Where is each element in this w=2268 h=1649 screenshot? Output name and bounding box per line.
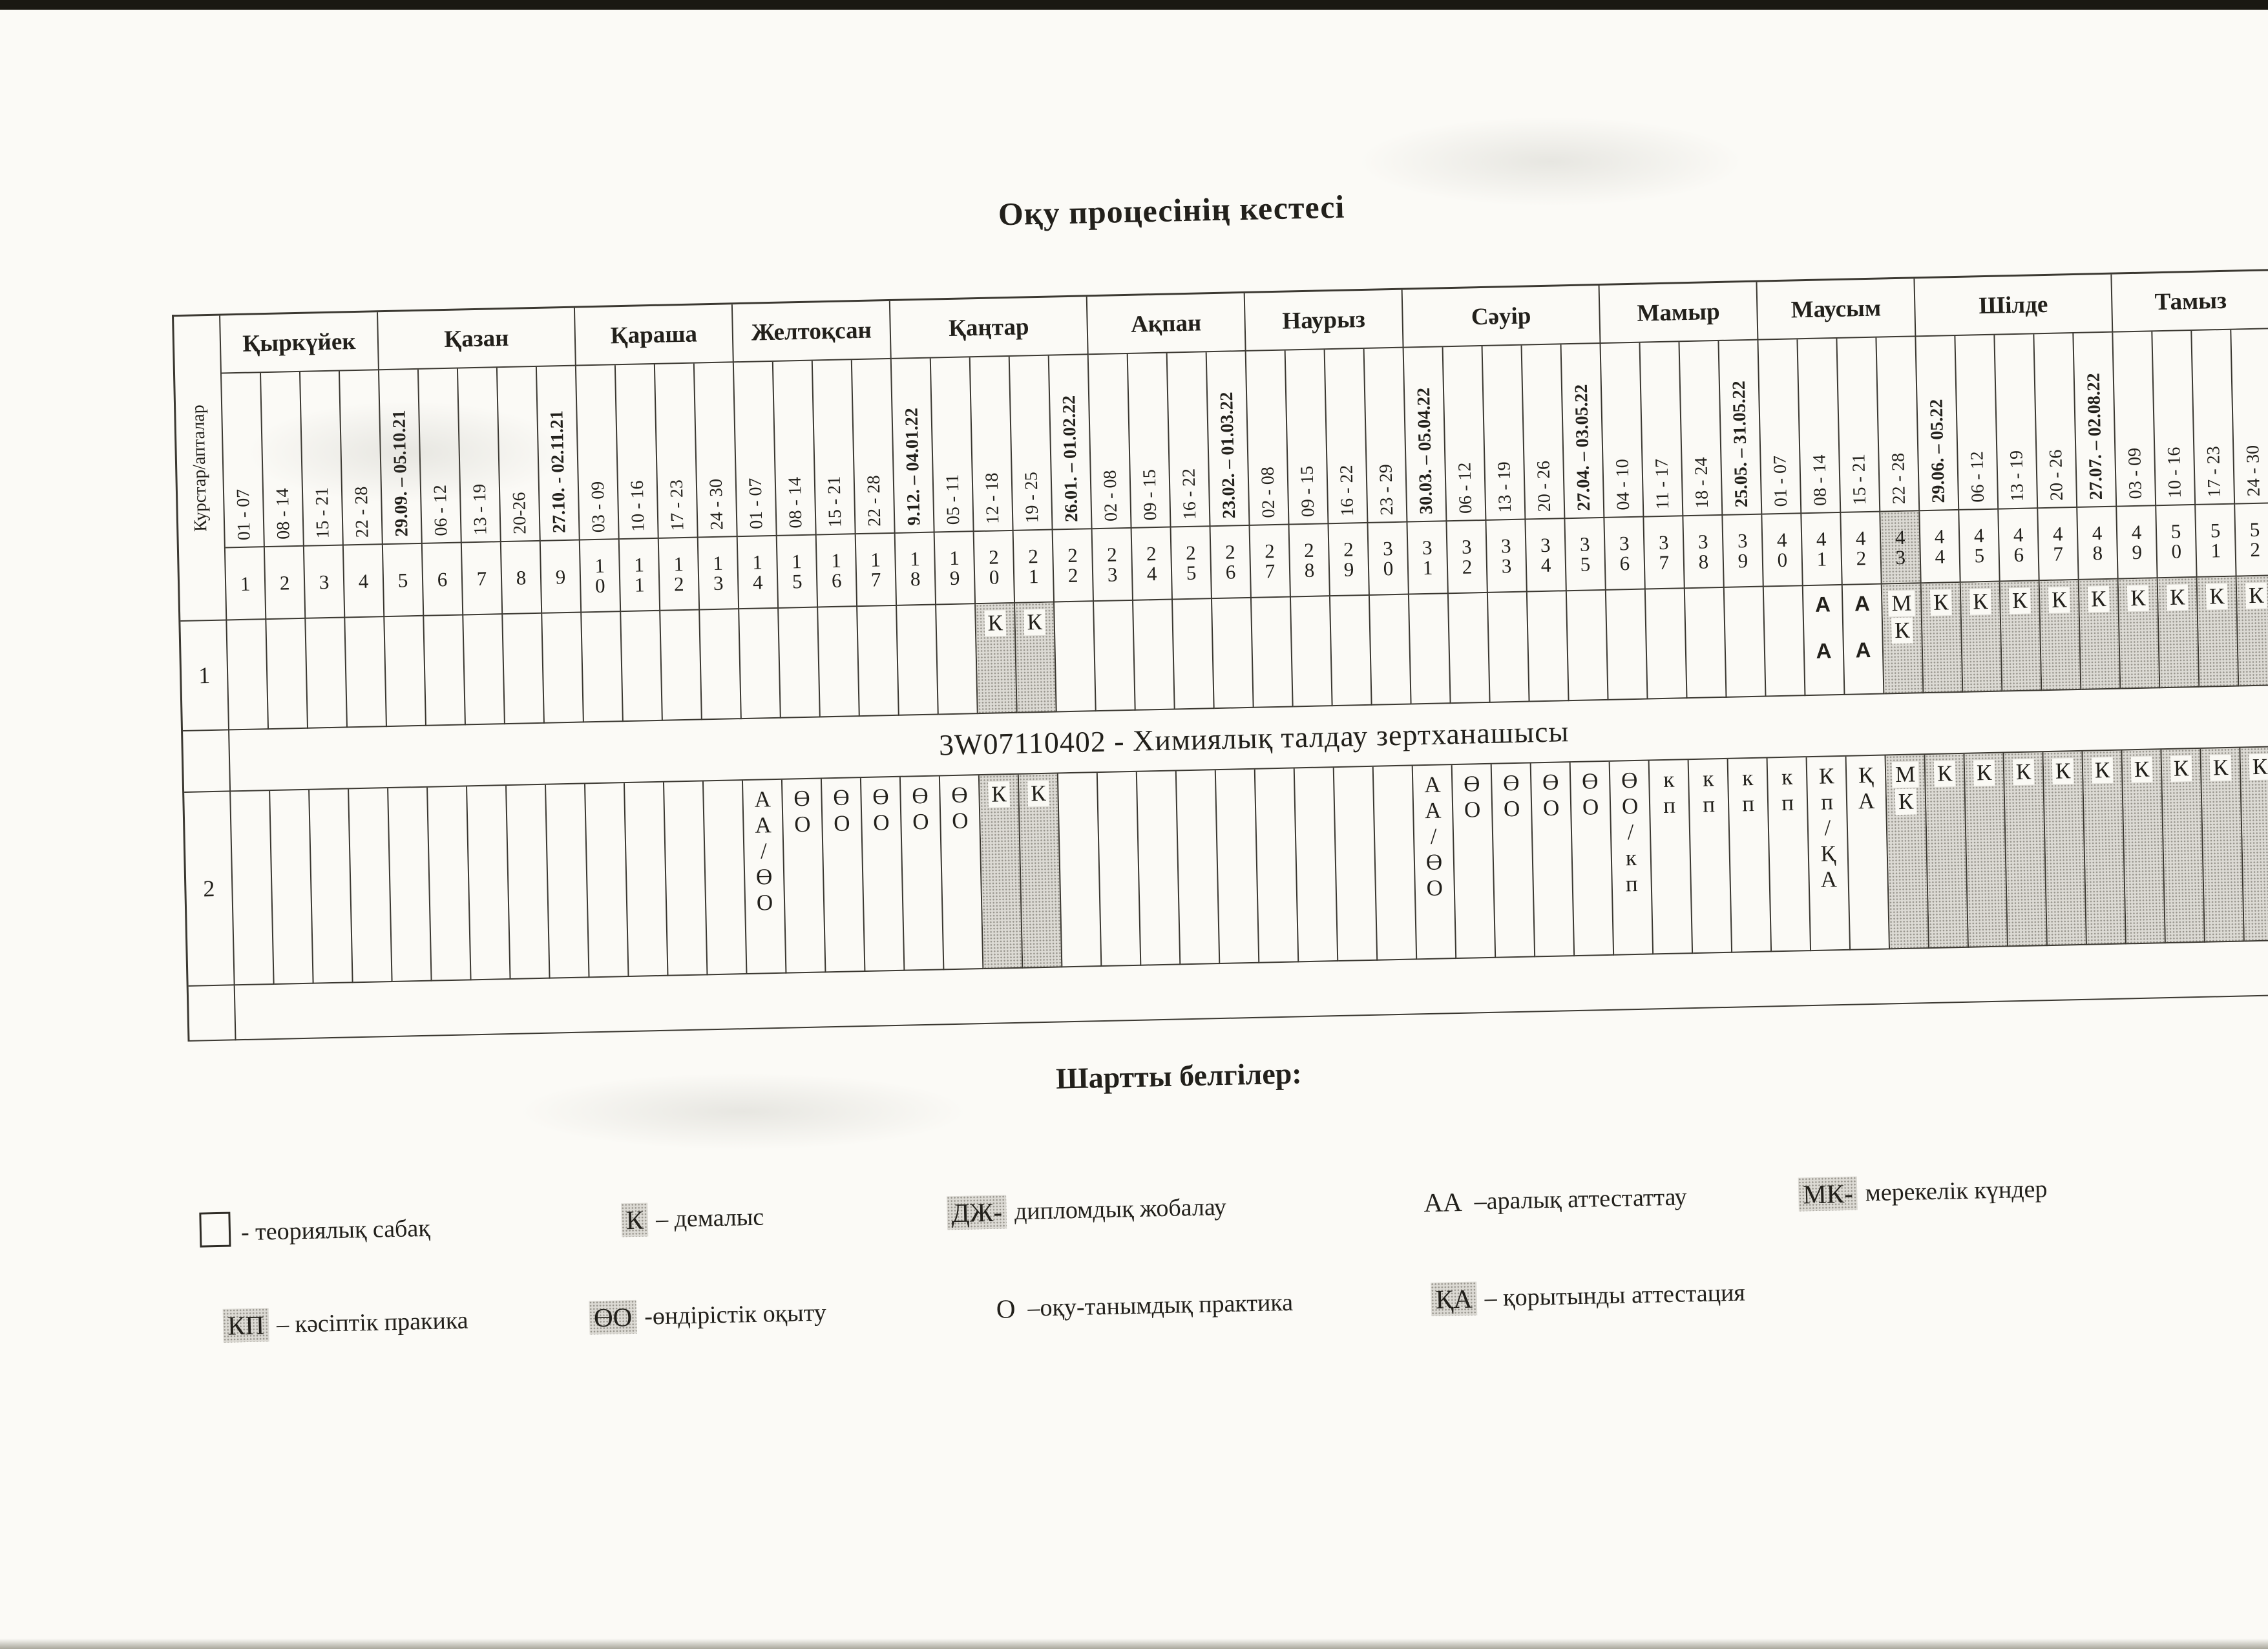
week-dates-label: 03 - 09 [2125, 447, 2147, 499]
month-header: Қазан [378, 308, 576, 371]
month-header: Қыркүйек [220, 312, 379, 373]
week-dates-cell: 13 - 19 [458, 368, 501, 543]
week-dates-cell: 11 - 17 [1640, 342, 1683, 517]
week-number-digit: 4 [1895, 527, 1906, 547]
cell-letter: к [1703, 766, 1714, 792]
cell-letter: О [794, 812, 811, 837]
course2-week-cell: кп [1768, 757, 1812, 952]
week-dates-label: 10 - 16 [627, 480, 649, 532]
week-dates-cell: 17 - 23 [2192, 330, 2235, 505]
cell-letter: А [1855, 638, 1871, 662]
week-dates-label: 22 - 28 [863, 475, 885, 527]
course1-week-cell: К [2079, 580, 2121, 690]
week-dates-cell: 10 - 16 [2152, 331, 2196, 506]
week-dates-cell: 02 - 08 [1089, 354, 1132, 529]
page-content: Оқу процесінің кестесі Курстар/апталарҚы… [0, 0, 2268, 1649]
week-number-cell: 9 [541, 540, 582, 613]
month-header: Ақпан [1087, 293, 1246, 355]
course1-week-cell [621, 611, 663, 722]
legend-symbol: ДЖ- [947, 1195, 1007, 1230]
week-dates-label: 02 - 08 [1100, 470, 1122, 521]
legend-text: дипломдық жобалау [1014, 1193, 1226, 1226]
week-number-cell: 3 [304, 545, 345, 618]
week-number-digit: 1 [949, 548, 960, 568]
week-number-digit: 5 [2249, 520, 2260, 540]
course1-week-cell: К [1961, 582, 2003, 693]
week-dates-cell: 06 - 12 [1955, 335, 1999, 510]
week-dates-label: 9.12. – 04.01.22 [901, 408, 925, 526]
week-dates-cell: 16 - 22 [1168, 352, 1211, 527]
course2-week-cell: АА/ӨО [1413, 765, 1457, 960]
legend-symbol: ӨО [589, 1300, 636, 1335]
legend-row-2: КП– кәсіптік пракикаӨО-өндірістік оқытуО… [11, 1264, 2268, 1372]
week-number-digit: 2 [1146, 543, 1157, 563]
week-dates-label: 20-26 [509, 492, 530, 534]
course1-week-cell [1212, 598, 1254, 709]
week-number-digit: 0 [595, 576, 605, 596]
week-number-digit: 4 [358, 571, 368, 591]
week-dates-label: 27.10. - 02.11.21 [547, 410, 570, 533]
week-number-digit: 4 [1935, 526, 1945, 546]
course1-week-cell [1094, 601, 1136, 711]
course2-week-cell [1098, 772, 1142, 967]
week-dates-cell: 17 - 23 [655, 364, 698, 539]
week-number-cell: 34 [1526, 519, 1566, 592]
course1-week-cell [306, 618, 348, 728]
week-dates-label: 24 - 30 [2243, 445, 2265, 496]
week-dates-cell: 03 - 09 [2113, 331, 2156, 507]
cell-letter: К [2245, 583, 2267, 609]
cell-letter: / [761, 838, 768, 864]
course2-week-cell: ӨО [901, 776, 945, 971]
course2-week-cell [585, 783, 629, 978]
week-number-cell: 22 [1053, 529, 1094, 602]
cell-letter: п [1742, 791, 1755, 817]
week-number-cell: 47 [2038, 508, 2079, 581]
week-number-digit: 4 [1540, 555, 1551, 575]
course1-week-cell [1173, 599, 1215, 709]
course1-week-cell [739, 609, 781, 719]
week-number-digit: 3 [713, 573, 724, 593]
week-dates-label: 06 - 12 [1967, 451, 1989, 503]
course1-week-cell [818, 607, 860, 717]
week-number-cell: 51 [2196, 505, 2236, 578]
course2-week-cell [1374, 766, 1418, 960]
cell-letter: Ө [833, 784, 850, 810]
week-dates-cell: 01 - 07 [222, 373, 265, 548]
course1-week-cell [424, 615, 466, 726]
week-number-digit: 8 [1698, 551, 1708, 571]
week-dates-label: 27.04. – 03.05.22 [1571, 384, 1594, 511]
cell-letter: к [1781, 764, 1793, 790]
course1-week-cell [1764, 586, 1806, 697]
week-number-digit: 3 [1580, 534, 1590, 554]
week-number-digit: 1 [910, 549, 920, 569]
week-number-digit: 4 [1777, 530, 1787, 550]
week-dates-label: 24 - 30 [706, 478, 728, 530]
cell-letter: К [2170, 755, 2192, 782]
week-number-cell: 17 [856, 534, 897, 607]
month-header: Наурыз [1245, 290, 1404, 352]
cell-letter: К [984, 610, 1006, 636]
week-number-digit: 6 [1225, 562, 1235, 582]
theory-lesson-box-icon [199, 1212, 231, 1248]
week-dates-label: 15 - 21 [824, 476, 846, 527]
legend-text: - теориялық сабақ [241, 1214, 431, 1246]
cell-letter: А [1425, 797, 1442, 823]
week-dates-cell: 15 - 21 [813, 360, 856, 535]
week-dates-cell: 18 - 24 [1679, 341, 1723, 516]
week-dates-label: 12 - 18 [982, 472, 1003, 524]
cell-letter: п [1625, 870, 1638, 896]
legend-item: ҚА– қорытынды аттестация [1431, 1276, 1745, 1316]
week-dates-label: 09 - 15 [1139, 469, 1161, 521]
spacer-cell [189, 985, 236, 1042]
cell-letter: О [756, 890, 773, 916]
cell-letter: К [2167, 584, 2189, 611]
week-number-digit: 1 [635, 574, 645, 594]
page-title: Оқу процесінің кестесі [998, 188, 1345, 233]
legend-item: - теориялық сабақ [199, 1208, 430, 1254]
week-number-digit: 3 [1659, 532, 1669, 552]
week-dates-label: 26.01. – 01.02.22 [1059, 395, 1082, 523]
course1-week-cell [1133, 600, 1175, 711]
course1-week-cell [1488, 593, 1530, 703]
week-number-digit: 5 [792, 571, 803, 591]
course1-week-cell: К [2119, 578, 2161, 689]
week-number-digit: 5 [2170, 521, 2181, 541]
cell-letter: А [1816, 638, 1832, 663]
course1-week-cell [582, 612, 624, 722]
week-number-digit: 2 [1343, 539, 1354, 559]
legend-symbol: К [621, 1203, 648, 1237]
week-dates-cell: 09 - 15 [1286, 350, 1329, 525]
cell-letter: К [2127, 585, 2149, 612]
week-dates-cell: 22 - 28 [852, 359, 896, 534]
course2-week-cell: К [2083, 751, 2126, 945]
cell-letter: Ө [1542, 770, 1559, 795]
course2-week-cell: ӨО [1492, 763, 1536, 958]
month-header: Тамыз [2112, 271, 2268, 332]
cell-letter: К [1934, 761, 1956, 787]
week-number-digit: 1 [673, 554, 684, 574]
week-dates-label: 02 - 08 [1257, 467, 1279, 518]
week-dates-cell: 25.05. – 31.05.22 [1719, 341, 1762, 516]
cell-letter: Ө [1621, 768, 1638, 793]
cell-letter: О [1582, 794, 1599, 820]
course1-week-cell [1646, 589, 1688, 699]
week-dates-cell: 12 - 18 [971, 357, 1014, 532]
week-dates-label: 01 - 07 [1770, 455, 1792, 507]
week-dates-label: 23.02. – 01.03.22 [1217, 392, 1240, 519]
course2-week-cell: кп [1650, 760, 1694, 954]
week-number-cell: 33 [1486, 520, 1527, 593]
week-dates-label: 17 - 23 [666, 479, 688, 531]
week-dates-cell: 04 - 10 [1601, 343, 1644, 518]
week-number-cell: 45 [1959, 510, 2000, 583]
cell-letter: К [2088, 586, 2110, 613]
week-number-digit: 2 [1856, 548, 1866, 568]
course1-week-cell: К [2040, 580, 2082, 691]
month-header: Қаңтар [890, 297, 1089, 359]
course1-week-cell [463, 614, 505, 725]
legend-item: О–оқу-танымдық практика [991, 1286, 1293, 1326]
week-number-digit: 8 [516, 567, 526, 587]
course2-week-cell: К [2043, 751, 2087, 946]
week-number-cell: 19 [935, 532, 976, 605]
course1-week-cell: К [2000, 581, 2042, 691]
course2-week-cell: АА/ӨО [743, 780, 787, 974]
cell-letter: К [2048, 587, 2070, 613]
week-number-digit: 0 [2171, 541, 2181, 561]
cell-letter: К [2249, 754, 2268, 781]
week-number-digit: 1 [831, 551, 841, 571]
week-number-cell: 12 [659, 538, 700, 611]
cell-letter: К [2130, 756, 2152, 782]
week-number-digit: 7 [871, 569, 881, 589]
week-number-digit: 2 [2250, 540, 2260, 560]
cell-letter: А [1815, 592, 1831, 616]
week-dates-cell: 19 - 25 [1010, 356, 1053, 531]
week-number-digit: 3 [1738, 530, 1748, 551]
week-number-digit: 1 [752, 552, 762, 572]
week-dates-label: 25.05. – 31.05.22 [1728, 381, 1752, 508]
cell-letter: Қ [1820, 841, 1836, 867]
week-dates-cell: 22 - 28 [1876, 337, 1920, 512]
week-dates-label: 05 - 11 [942, 474, 964, 525]
month-header: Желтоқсан [733, 301, 892, 362]
cell-letter: п [1781, 790, 1794, 816]
week-dates-label: 11 - 17 [1652, 458, 1674, 509]
week-dates-label: 22 - 28 [1888, 452, 1910, 504]
corner-label: Курстар/апталар [188, 404, 211, 532]
cell-letter: / [1824, 815, 1831, 841]
week-number-digit: 1 [2210, 540, 2221, 560]
cell-letter: О [834, 810, 850, 836]
month-header: Қараша [575, 304, 734, 366]
course2-week-cell: К [1926, 754, 1969, 949]
cell-letter: А [1424, 772, 1441, 798]
week-dates-label: 03 - 09 [587, 481, 609, 532]
week-dates-cell: 20 - 26 [1522, 344, 1566, 520]
course1-week-cell: К [2158, 578, 2200, 688]
week-number-cell: 27 [1250, 525, 1291, 598]
cell-letter: К [2091, 757, 2113, 784]
week-dates-label: 27.07. – 02.08.22 [2083, 373, 2106, 500]
calendar-table: Курстар/апталарҚыркүйекҚазанҚарашаЖелтоқ… [172, 269, 2268, 1042]
course2-week-cell: К [2240, 747, 2268, 941]
week-number-digit: 7 [1265, 561, 1275, 581]
cell-letter: К [1024, 609, 1045, 636]
cell-letter: К [1819, 763, 1834, 789]
week-number-digit: 5 [1580, 554, 1590, 574]
week-number-digit: 7 [2053, 543, 2063, 563]
course1-week-cell: АА [1843, 585, 1885, 695]
week-dates-cell: 29.09. – 05.10.21 [379, 370, 423, 545]
cell-letter: Ө [1582, 768, 1599, 794]
week-number-digit: 3 [1462, 536, 1472, 556]
cell-letter: К [1895, 788, 1916, 815]
week-number-digit: 2 [1068, 565, 1078, 585]
week-number-digit: 2 [989, 547, 999, 567]
course1-week-cell: К [1015, 602, 1057, 713]
week-dates-label: 04 - 10 [1612, 459, 1634, 510]
cell-letter: О [1504, 796, 1520, 822]
week-number-cell: 15 [777, 536, 818, 609]
legend-text: – қорытынды аттестация [1484, 1278, 1745, 1312]
course2-week-cell [349, 788, 393, 983]
course2-week-cell: кп [1728, 758, 1772, 952]
course2-week-cell [664, 781, 708, 976]
week-number-digit: 8 [1304, 560, 1314, 580]
week-number-digit: 5 [397, 570, 408, 590]
legend-text: -өндірістік оқыту [644, 1298, 826, 1330]
week-number-digit: 3 [1108, 564, 1118, 584]
week-dates-cell: 01 - 07 [734, 362, 777, 537]
week-dates-cell: 27.04. – 03.05.22 [1562, 344, 1605, 519]
qualification-text: 3W07110402 - Химиялық талдау зертханашыс… [938, 714, 1569, 762]
month-header: Сәуір [1403, 286, 1601, 348]
week-number-cell: 46 [1999, 509, 2039, 582]
week-number-digit: 4 [753, 572, 763, 592]
cell-letter: Ө [1503, 770, 1520, 796]
week-number-cell: 35 [1565, 518, 1606, 591]
course2-week-cell: ӨО [940, 775, 984, 970]
legend-text: мерекелік күндер [1865, 1175, 2048, 1207]
course2-week-cell: кп [1689, 759, 1733, 954]
week-dates-cell: 06 - 12 [419, 369, 462, 544]
cell-letter: Қ [1858, 762, 1874, 788]
week-number-digit: 1 [634, 554, 644, 574]
week-number-cell: 23 [1093, 529, 1133, 602]
week-dates-label: 19 - 25 [1021, 472, 1043, 523]
cell-letter: Ө [1425, 849, 1442, 875]
week-number-digit: 6 [832, 571, 842, 591]
week-number-digit: 3 [319, 571, 329, 591]
month-header: Мамыр [1600, 282, 1759, 344]
week-dates-cell: 16 - 22 [1325, 349, 1369, 524]
course2-week-cell [1058, 773, 1102, 967]
course1-week-cell [936, 604, 978, 715]
legend-symbol: ҚА [1431, 1282, 1477, 1317]
course2-week-cell: К [1019, 773, 1063, 968]
week-number-digit: 2 [1028, 546, 1038, 566]
week-number-cell: 44 [1920, 510, 1960, 583]
cell-letter: О [912, 809, 929, 835]
course1-week-cell: МК [1882, 583, 1924, 694]
legend-item: ДЖ-дипломдық жобалау [947, 1190, 1226, 1230]
course2-week-cell: К [2122, 750, 2166, 944]
course2-week-cell: К [2004, 752, 2048, 947]
course2-week-cell [231, 791, 275, 985]
month-header: Маусым [1757, 278, 1916, 340]
week-number-digit: 3 [1698, 531, 1708, 551]
week-dates-label: 29.06. – 05.22 [1926, 399, 1949, 503]
course1-week-cell [1409, 594, 1451, 704]
cell-letter: п [1663, 793, 1676, 819]
week-dates-cell: 05 - 11 [931, 357, 974, 532]
course2-week-cell [507, 785, 551, 980]
week-number-cell: 10 [580, 540, 621, 613]
week-number-cell: 32 [1447, 521, 1487, 594]
week-dates-label: 17 - 23 [2203, 446, 2225, 498]
cell-letter: К [988, 781, 1010, 808]
course2-week-cell: ӨО [1571, 762, 1615, 956]
cell-letter: / [1627, 819, 1634, 845]
week-dates-cell: 26.01. – 01.02.22 [1049, 355, 1093, 530]
legend-row-1: - теориялық сабақК– демалысДЖ-дипломдық … [8, 1167, 2268, 1275]
cell-letter: Ө [1464, 771, 1480, 797]
week-number-cell: 49 [2117, 506, 2158, 579]
week-number-digit: 4 [2013, 525, 2024, 545]
week-number-cell: 37 [1644, 516, 1685, 589]
week-number-cell: 38 [1683, 516, 1724, 589]
week-number-digit: 3 [1895, 547, 1906, 567]
cell-letter: к [1625, 845, 1637, 871]
course1-week-cell [857, 606, 899, 717]
course2-week-cell [310, 789, 353, 983]
scan-edge-bottom [0, 1639, 2268, 1649]
course1-week-cell [700, 609, 742, 720]
week-dates-label: 22 - 28 [351, 486, 373, 538]
cell-letter: к [1742, 765, 1754, 791]
course-label-cell: 2 [184, 792, 235, 986]
week-number-digit: 7 [1659, 552, 1669, 572]
week-dates-label: 13 - 19 [2006, 450, 2028, 501]
course1-week-cell: К [976, 604, 1018, 714]
week-dates-label: 08 - 14 [1809, 454, 1831, 506]
week-number-cell: 50 [2156, 505, 2197, 578]
course1-week-cell: К [2198, 577, 2240, 688]
course2-week-cell: ӨО [1531, 762, 1575, 957]
week-number-cell: 24 [1132, 528, 1173, 601]
cell-letter: К [1891, 617, 1913, 644]
week-number-digit: 5 [2210, 520, 2220, 540]
course1-week-cell [779, 607, 821, 718]
week-dates-cell: 06 - 12 [1444, 346, 1487, 521]
course1-week-cell [1528, 591, 1570, 702]
week-dates-label: 01 - 07 [745, 478, 767, 529]
legend-item: АА–аралық аттестаттау [1419, 1180, 1687, 1219]
spacer-cell [183, 730, 231, 793]
week-dates-label: 06 - 12 [1454, 462, 1476, 514]
course1-week-cell [1685, 588, 1727, 698]
cell-letter: О [1543, 795, 1560, 821]
legend-item: ӨО-өндірістік оқыту [589, 1296, 826, 1334]
course1-week-cell: АА [1803, 585, 1845, 696]
week-number-digit: 3 [1383, 538, 1393, 558]
week-dates-cell: 13 - 19 [1483, 346, 1526, 521]
legend-text: –оқу-танымдық практика [1027, 1288, 1294, 1323]
week-number-digit: 2 [1304, 540, 1314, 560]
week-number-digit: 2 [1067, 545, 1078, 565]
week-number-digit: 0 [989, 567, 1000, 587]
course2-week-cell [625, 782, 669, 977]
course2-week-cell [1137, 771, 1181, 965]
legend-symbol: АА [1419, 1185, 1467, 1220]
cell-letter: М [1892, 761, 1919, 788]
week-dates-cell: 22 - 28 [340, 370, 383, 545]
corner-cell: Курстар/апталар [174, 316, 227, 622]
cell-letter: К [2009, 588, 2031, 614]
course2-week-cell [546, 784, 590, 978]
week-dates-label: 08 - 14 [784, 477, 806, 529]
week-dates-label: 01 - 07 [233, 488, 255, 540]
week-dates-label: 20 - 26 [1533, 460, 1555, 512]
week-dates-label: 10 - 16 [2164, 446, 2186, 498]
course2-week-cell: К [1964, 753, 2008, 947]
course2-week-cell [467, 786, 511, 980]
